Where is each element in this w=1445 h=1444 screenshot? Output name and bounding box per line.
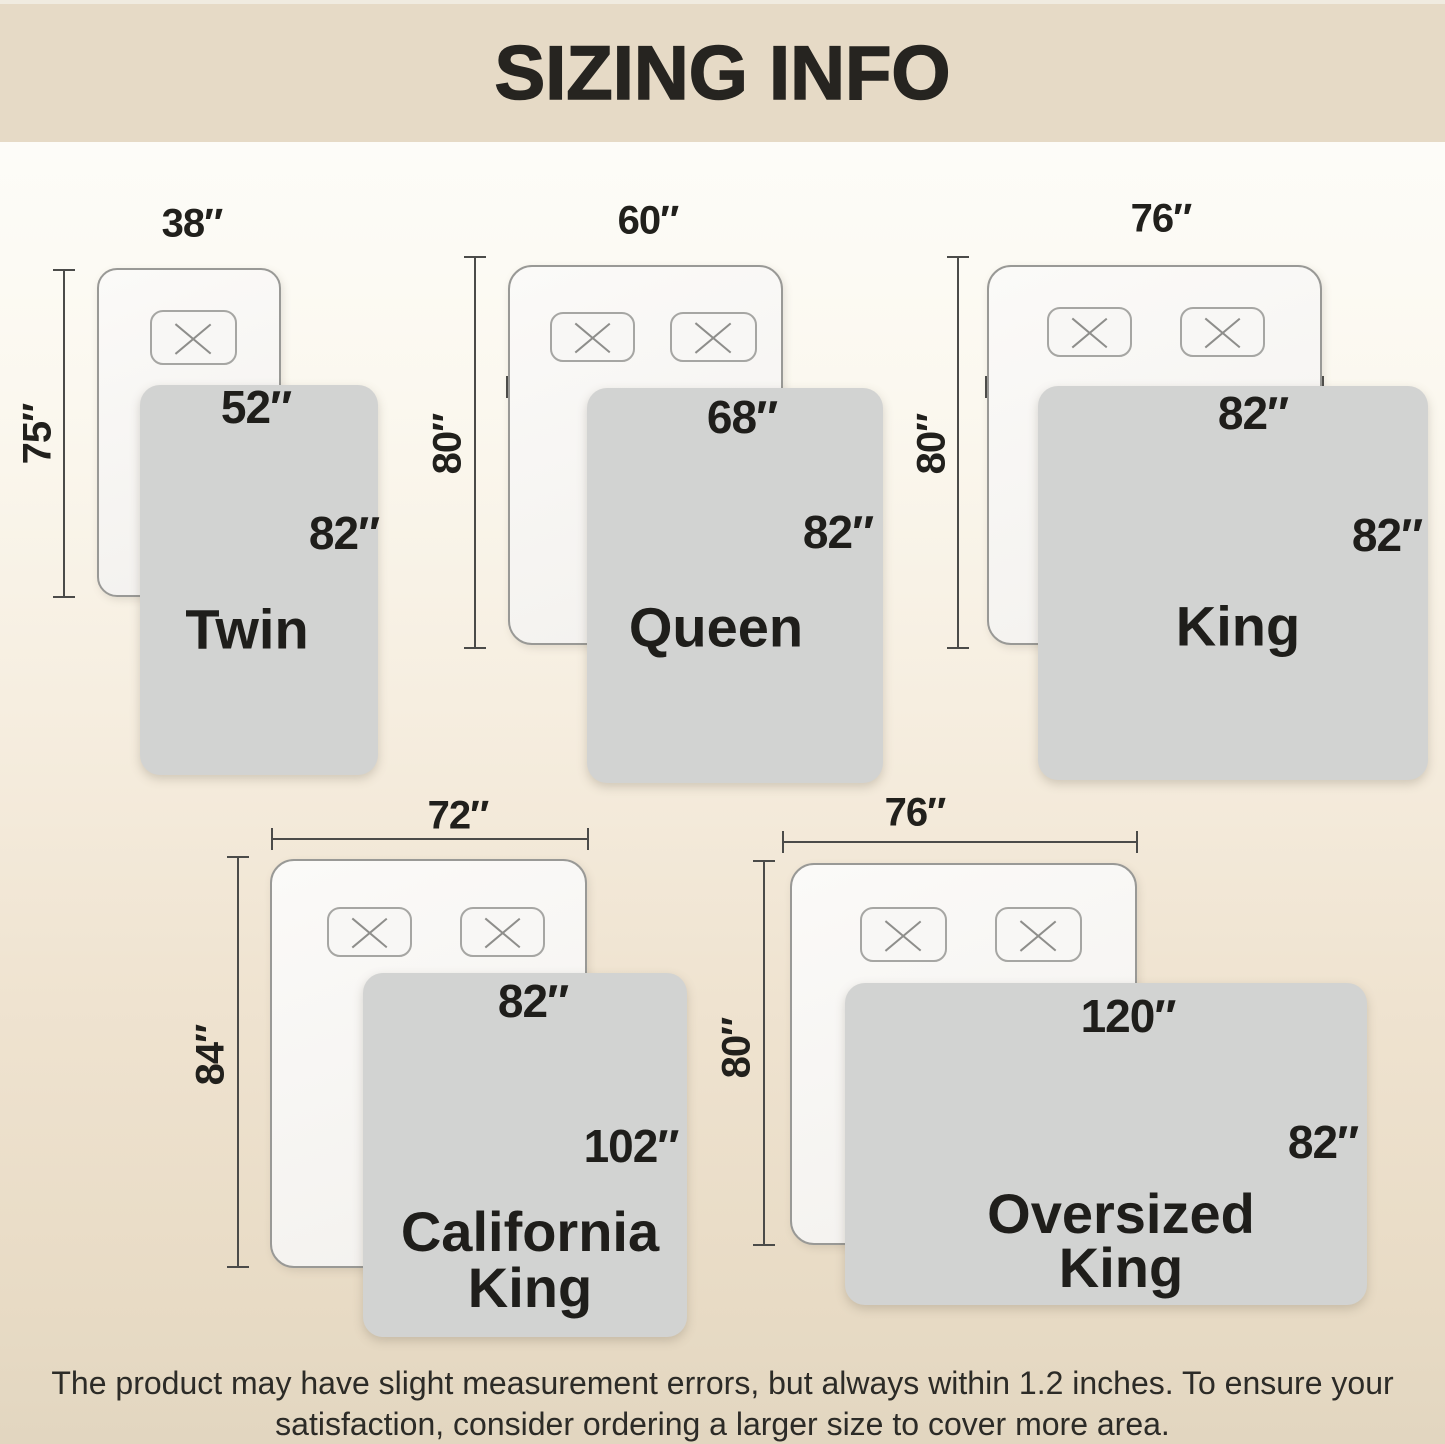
oversized-king-size-label: Oversized King bbox=[987, 1187, 1255, 1295]
measurement-disclaimer: The product may have slight measurement … bbox=[0, 1363, 1445, 1444]
pillow-icon bbox=[670, 312, 757, 362]
oversized-king-size-label-line2: King bbox=[987, 1241, 1255, 1295]
queen-blanket-width-value: 68″ bbox=[707, 390, 777, 444]
twin-blanket bbox=[140, 385, 378, 775]
disclaimer-line1: The product may have slight measurement … bbox=[0, 1363, 1445, 1404]
oversized-king-bed-width-dimension-line bbox=[783, 841, 1137, 843]
pillow-icon bbox=[327, 907, 412, 957]
page-title: SIZING INFO bbox=[495, 30, 951, 117]
queen-blanket bbox=[587, 388, 883, 783]
king-bed-width-value: 76″ bbox=[1131, 197, 1192, 242]
twin-size-label: Twin bbox=[185, 597, 308, 662]
california-king-size-label-line1: California bbox=[401, 1204, 659, 1260]
twin-blanket-length-value: 82″ bbox=[309, 506, 379, 560]
twin-blanket-width-value: 52″ bbox=[221, 380, 291, 434]
pillow-icon bbox=[1047, 307, 1132, 357]
twin-bed-width-value: 38″ bbox=[162, 202, 223, 247]
king-bed-length-dimension-line bbox=[957, 257, 959, 648]
california-king-size-label: California King bbox=[401, 1204, 659, 1316]
oversized-king-bed-width-value: 76″ bbox=[885, 791, 946, 836]
california-king-blanket-length-value: 102″ bbox=[584, 1119, 679, 1173]
pillow-icon bbox=[860, 907, 947, 962]
twin-bed-length-dimension-line bbox=[63, 270, 65, 597]
queen-blanket-length-value: 82″ bbox=[803, 505, 873, 559]
california-king-size-label-line2: King bbox=[401, 1260, 659, 1316]
pillow-icon bbox=[1180, 307, 1265, 357]
pillow-icon bbox=[150, 310, 237, 365]
california-king-bed-length-value: 84″ bbox=[189, 1025, 234, 1086]
pillow-icon bbox=[995, 907, 1082, 962]
queen-bed-width-value: 60″ bbox=[618, 199, 679, 244]
disclaimer-line2: satisfaction, consider ordering a larger… bbox=[0, 1404, 1445, 1444]
king-blanket-width-value: 82″ bbox=[1218, 386, 1288, 440]
queen-bed-length-dimension-line bbox=[474, 257, 476, 648]
oversized-king-bed-length-dimension-line bbox=[763, 861, 765, 1245]
oversized-king-blanket-width-value: 120″ bbox=[1081, 989, 1176, 1043]
sizing-info-infographic: SIZING INFO 38″ 75″ 52″ 82″ Twin 60″ 80″ bbox=[0, 0, 1445, 1444]
king-blanket-length-value: 82″ bbox=[1352, 508, 1422, 562]
queen-bed-length-value: 80″ bbox=[426, 414, 471, 475]
pillow-icon bbox=[460, 907, 545, 957]
diagram-area: 38″ 75″ 52″ 82″ Twin 60″ 80″ 68″ 82″ Que bbox=[0, 142, 1445, 1444]
oversized-king-size-label-line1: Oversized bbox=[987, 1187, 1255, 1241]
oversized-king-blanket-length-value: 82″ bbox=[1288, 1115, 1358, 1169]
california-king-bed-width-value: 72″ bbox=[428, 794, 489, 839]
pillow-icon bbox=[550, 312, 635, 362]
queen-size-label: Queen bbox=[629, 595, 803, 660]
header-banner: SIZING INFO bbox=[0, 4, 1445, 142]
king-bed-length-value: 80″ bbox=[910, 414, 955, 475]
california-king-blanket-width-value: 82″ bbox=[498, 974, 568, 1028]
king-size-label: King bbox=[1176, 594, 1300, 659]
california-king-bed-length-dimension-line bbox=[237, 857, 239, 1267]
oversized-king-bed-length-value: 80″ bbox=[715, 1018, 760, 1079]
king-blanket bbox=[1038, 386, 1428, 780]
twin-bed-length-value: 75″ bbox=[16, 404, 61, 465]
